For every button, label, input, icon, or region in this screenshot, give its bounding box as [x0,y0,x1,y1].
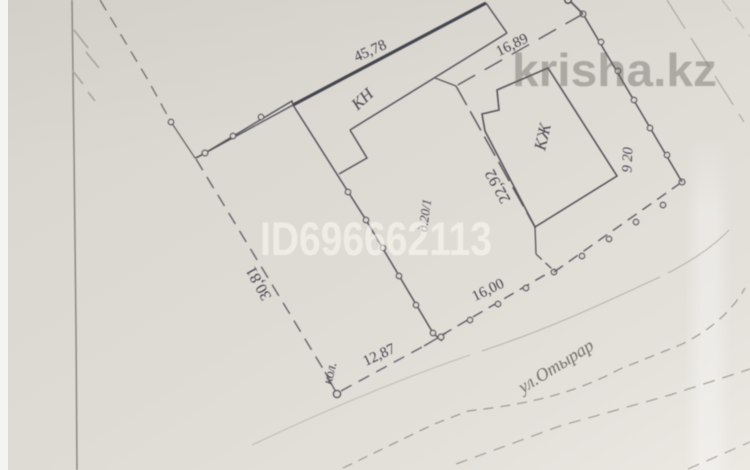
svg-text:krisha.kz: krisha.kz [512,44,717,96]
svg-text:ID696662113: ID696662113 [260,212,492,265]
svg-text:9 20: 9 20 [620,146,637,173]
